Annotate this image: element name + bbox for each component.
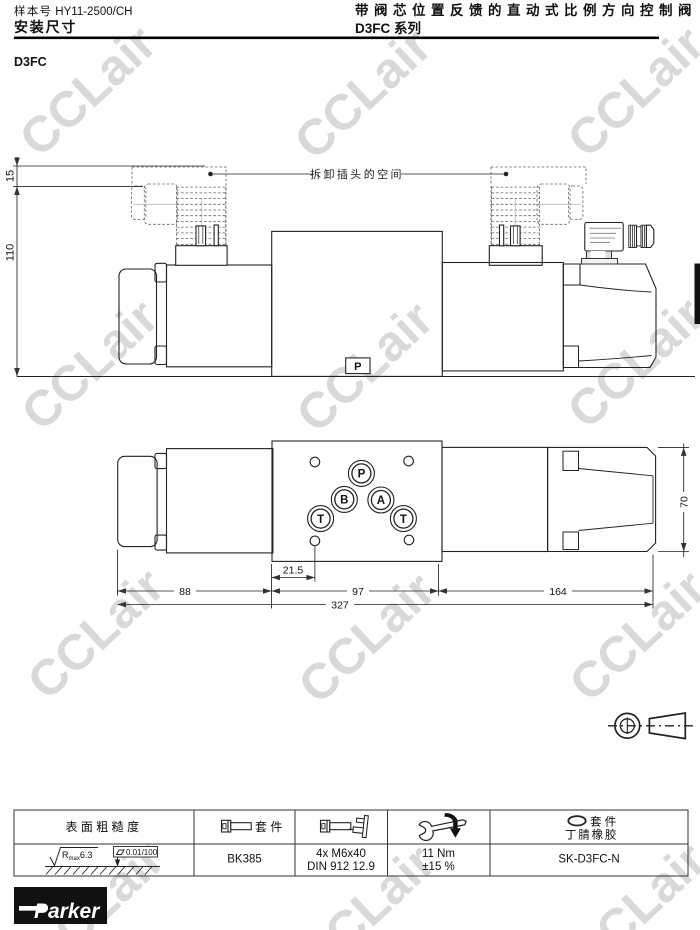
svg-text:SK-D3FC-N: SK-D3FC-N xyxy=(558,854,619,866)
svg-text:11 Nm: 11 Nm xyxy=(422,848,455,860)
svg-text:丁腈橡胶: 丁腈橡胶 xyxy=(565,828,618,842)
svg-text:套 件: 套 件 xyxy=(590,815,616,829)
svg-text:CCLair: CCLair xyxy=(559,831,700,930)
svg-text:D3FC: D3FC xyxy=(14,55,47,69)
svg-text:P: P xyxy=(358,469,366,481)
svg-text:21.5: 21.5 xyxy=(283,565,304,577)
svg-text:±15 %: ±15 % xyxy=(422,861,455,873)
svg-text:CCLair: CCLair xyxy=(288,561,446,714)
svg-text:样本号 HY11-2500/CH: 样本号 HY11-2500/CH xyxy=(14,4,132,18)
svg-text:CCLair: CCLair xyxy=(284,17,442,170)
svg-text:0.01/100: 0.01/100 xyxy=(126,848,158,857)
svg-text:套 件: 套 件 xyxy=(255,820,282,834)
svg-text:表面粗糙度: 表面粗糙度 xyxy=(65,819,142,834)
svg-text:T: T xyxy=(317,514,324,526)
svg-text:CCLair: CCLair xyxy=(17,557,175,710)
svg-text:327: 327 xyxy=(331,600,349,612)
svg-text:T: T xyxy=(400,514,407,526)
svg-text:164: 164 xyxy=(549,586,567,598)
svg-text:110: 110 xyxy=(5,244,17,262)
svg-text:15: 15 xyxy=(5,170,17,182)
svg-text:DIN 912 12.9: DIN 912 12.9 xyxy=(307,861,375,873)
svg-text:BK385: BK385 xyxy=(227,854,262,866)
svg-text:CCLair: CCLair xyxy=(11,288,169,441)
svg-text:Rmax6.3: Rmax6.3 xyxy=(62,850,92,862)
svg-text:拆卸插头的空间: 拆卸插头的空间 xyxy=(310,167,404,181)
svg-text:CCLair: CCLair xyxy=(559,559,700,712)
svg-text:4x M6x40: 4x M6x40 xyxy=(316,848,366,860)
svg-text:带阀芯位置反馈的直动式比例方向控制阀: 带阀芯位置反馈的直动式比例方向控制阀 xyxy=(355,2,697,18)
svg-text:P: P xyxy=(354,361,361,373)
svg-text:70: 70 xyxy=(679,496,691,508)
svg-text:A: A xyxy=(377,495,385,507)
svg-text:D3FC 系列: D3FC 系列 xyxy=(355,20,421,36)
svg-text:安装尺寸: 安装尺寸 xyxy=(14,19,77,35)
svg-text:97: 97 xyxy=(352,586,364,598)
svg-text:Parker: Parker xyxy=(34,900,101,923)
svg-text:88: 88 xyxy=(179,586,191,598)
svg-text:B: B xyxy=(340,495,348,507)
